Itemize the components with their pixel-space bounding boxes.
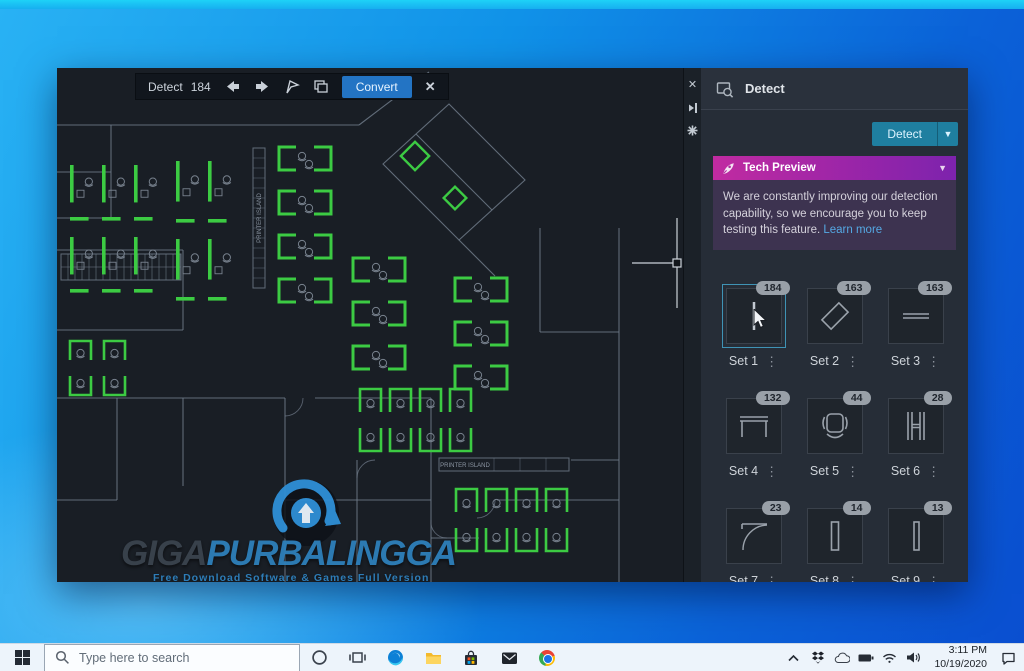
- detect-toolbar-label: Detect 184: [148, 80, 211, 94]
- set-count-badge: 23: [762, 501, 790, 515]
- next-arrow-icon[interactable]: [254, 79, 271, 94]
- set-tile: 28: [888, 398, 944, 454]
- set-count-badge: 14: [843, 501, 871, 515]
- desktop-gradient-strip: [0, 0, 1024, 9]
- tech-preview-header[interactable]: Tech Preview ▼: [713, 156, 956, 180]
- set-thumbnail-3[interactable]: 163: [884, 284, 948, 348]
- set-tile: 184: [726, 288, 782, 344]
- set-thumbnail-2[interactable]: 163: [803, 284, 867, 348]
- clock[interactable]: 3:11 PM 10/19/2020: [928, 644, 994, 670]
- panel-title: Detect: [745, 81, 785, 96]
- mouse-cursor-icon: [753, 309, 768, 329]
- set-count-badge: 28: [924, 391, 952, 405]
- search-placeholder: Type here to search: [79, 651, 189, 665]
- floor-plan: PRINTER ISLANDPRINTER ISLAND: [57, 68, 683, 582]
- set-cell-3: 163Set 3⋮: [875, 284, 956, 368]
- set-cell-6: 28Set 6⋮: [875, 394, 956, 478]
- tech-preview-title: Tech Preview: [743, 162, 930, 174]
- wifi-icon[interactable]: [880, 644, 899, 671]
- set-tile: 163: [807, 288, 863, 344]
- previous-arrow-icon[interactable]: [224, 79, 241, 94]
- set-options-menu-icon[interactable]: ⋮: [927, 355, 940, 368]
- set-options-menu-icon[interactable]: ⋮: [846, 355, 859, 368]
- edge-icon: [387, 649, 404, 666]
- set-count-badge: 44: [843, 391, 871, 405]
- panel-toolbar: Detect ▼: [701, 110, 968, 146]
- set-thumbnail-1[interactable]: 184: [722, 284, 786, 348]
- palette-close-icon[interactable]: ✕: [688, 80, 697, 91]
- set-options-menu-icon[interactable]: ⋮: [765, 465, 778, 478]
- set-count-badge: 132: [756, 391, 790, 405]
- system-tray: 3:11 PM 10/19/2020: [784, 644, 1024, 671]
- set-options-menu-icon[interactable]: ⋮: [765, 355, 778, 368]
- set-label: Set 8: [810, 574, 839, 582]
- svg-text:PRINTER ISLAND: PRINTER ISLAND: [257, 193, 263, 243]
- detect-count: 184: [191, 80, 211, 94]
- set-thumbnail-8[interactable]: 14: [803, 504, 867, 568]
- set-tile: 132: [726, 398, 782, 454]
- detect-panel-icon: [716, 80, 734, 98]
- set-tile: 13: [888, 508, 944, 564]
- hidden-icons-chevron[interactable]: [784, 644, 803, 671]
- dropbox-icon[interactable]: [808, 644, 827, 671]
- set-tile: 23: [726, 508, 782, 564]
- search-icon: [55, 650, 70, 665]
- set-tile: 163: [888, 288, 944, 344]
- chrome-icon: [539, 650, 555, 666]
- set-glyph-hlines-icon: [896, 296, 936, 336]
- tech-preview-banner: Tech Preview ▼ We are constantly improvi…: [713, 156, 956, 250]
- action-center-icon[interactable]: [999, 644, 1018, 671]
- set-tile: 44: [807, 398, 863, 454]
- set-label: Set 3: [891, 354, 920, 368]
- tech-preview-body: We are constantly improving our detectio…: [713, 180, 956, 250]
- set-options-menu-icon[interactable]: ⋮: [846, 575, 859, 582]
- set-label: Set 4: [729, 464, 758, 478]
- clock-time: 3:11 PM: [934, 644, 987, 657]
- detect-dropdown-caret-icon[interactable]: ▼: [937, 122, 958, 146]
- set-glyph-hbeam-icon: [896, 406, 936, 446]
- taskbar: Type here to search: [0, 643, 1024, 671]
- set-thumbnail-7[interactable]: 23: [722, 504, 786, 568]
- set-glyph-desk-icon: [734, 406, 774, 446]
- set-count-badge: 184: [756, 281, 790, 295]
- desktop: PRINTER ISLANDPRINTER ISLAND Detect 184: [0, 0, 1024, 671]
- set-count-badge: 163: [918, 281, 952, 295]
- set-cell-8: 14Set 8⋮: [794, 504, 875, 582]
- set-label: Set 9: [891, 574, 920, 582]
- set-glyph-diamond-icon: [815, 296, 855, 336]
- set-options-menu-icon[interactable]: ⋮: [765, 575, 778, 582]
- set-cell-1: 184Set 1⋮: [713, 284, 794, 368]
- detect-toolbar: Detect 184 Convert: [135, 73, 449, 100]
- taskbar-search-input[interactable]: Type here to search: [44, 644, 300, 671]
- set-cell-7: 23Set 7⋮: [713, 504, 794, 582]
- cortana-icon: [311, 649, 328, 666]
- cortana-button[interactable]: [300, 644, 338, 671]
- file-explorer-button[interactable]: [414, 644, 452, 671]
- file-explorer-icon: [425, 651, 442, 665]
- task-view-icon: [349, 650, 366, 665]
- store-button[interactable]: [452, 644, 490, 671]
- set-label: Set 7: [729, 574, 758, 582]
- windows-logo-icon: [15, 650, 30, 665]
- flag-icon[interactable]: [284, 79, 300, 94]
- set-thumbnail-9[interactable]: 13: [884, 504, 948, 568]
- set-glyph-vrect-icon: [815, 516, 855, 556]
- convert-button[interactable]: Convert: [342, 76, 412, 98]
- start-button[interactable]: [0, 644, 44, 671]
- mail-button[interactable]: [490, 644, 528, 671]
- detect-panel: Detect Detect ▼ Tech Preview ▼: [701, 68, 968, 582]
- set-tile: 14: [807, 508, 863, 564]
- palette-properties-icon[interactable]: [687, 125, 698, 136]
- store-icon: [463, 650, 479, 666]
- set-thumbnail-5[interactable]: 44: [803, 394, 867, 458]
- set-glyph-door-icon: [734, 516, 774, 556]
- set-label: Set 2: [810, 354, 839, 368]
- panel-header: Detect: [701, 68, 968, 110]
- set-label: Set 5: [810, 464, 839, 478]
- set-thumbnail-4[interactable]: 132: [722, 394, 786, 458]
- learn-more-link[interactable]: Learn more: [823, 224, 882, 236]
- tech-preview-collapse-icon[interactable]: ▼: [938, 163, 947, 173]
- autocad-window: PRINTER ISLANDPRINTER ISLAND Detect 184: [57, 68, 968, 582]
- set-count-badge: 13: [924, 501, 952, 515]
- battery-icon[interactable]: [856, 644, 875, 671]
- rocket-icon: [722, 162, 735, 175]
- set-options-menu-icon[interactable]: ⋮: [927, 465, 940, 478]
- set-thumbnail-6[interactable]: 28: [884, 394, 948, 458]
- svg-text:PRINTER ISLAND: PRINTER ISLAND: [440, 463, 490, 469]
- set-cell-9: 13Set 9⋮: [875, 504, 956, 582]
- drawing-canvas[interactable]: PRINTER ISLANDPRINTER ISLAND Detect 184: [57, 68, 683, 582]
- task-view-button[interactable]: [338, 644, 376, 671]
- set-label: Set 6: [891, 464, 920, 478]
- mail-icon: [501, 651, 518, 665]
- onedrive-icon[interactable]: [832, 644, 851, 671]
- palette-autohide-icon[interactable]: [688, 103, 698, 113]
- set-options-menu-icon[interactable]: ⋮: [846, 465, 859, 478]
- detect-split-button: Detect ▼: [872, 122, 958, 146]
- detected-sets-grid: 184Set 1⋮163Set 2⋮163Set 3⋮132Set 4⋮44Se…: [701, 250, 968, 582]
- detect-button[interactable]: Detect: [872, 122, 937, 146]
- set-count-badge: 163: [837, 281, 871, 295]
- set-label: Set 1: [729, 354, 758, 368]
- palette-strip: ✕: [683, 68, 701, 582]
- copy-sets-icon[interactable]: [313, 79, 329, 94]
- set-glyph-vrect2-icon: [896, 516, 936, 556]
- set-options-menu-icon[interactable]: ⋮: [927, 575, 940, 582]
- volume-icon[interactable]: [904, 644, 923, 671]
- edge-button[interactable]: [376, 644, 414, 671]
- set-glyph-chair-icon: [815, 406, 855, 446]
- chrome-button[interactable]: [528, 644, 566, 671]
- set-cell-5: 44Set 5⋮: [794, 394, 875, 478]
- set-cell-4: 132Set 4⋮: [713, 394, 794, 478]
- set-cell-2: 163Set 2⋮: [794, 284, 875, 368]
- detect-label: Detect: [148, 80, 183, 94]
- toolbar-close-icon[interactable]: ✕: [425, 79, 436, 95]
- clock-date: 10/19/2020: [934, 658, 987, 671]
